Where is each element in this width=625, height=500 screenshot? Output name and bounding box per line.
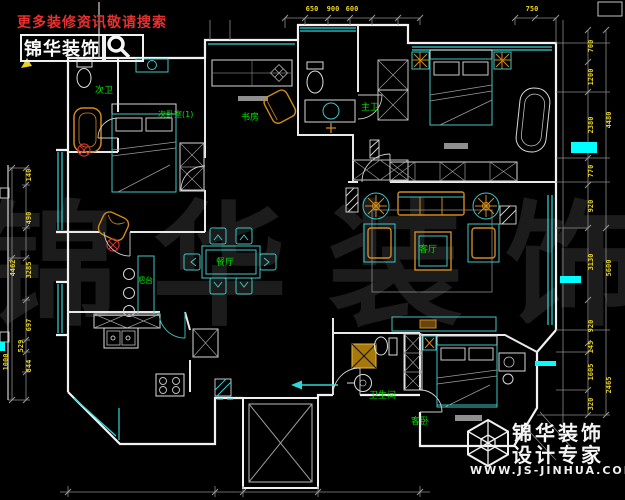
dim-value: 529 (17, 340, 25, 353)
dim-value: 3130 (587, 254, 595, 271)
chair (260, 254, 276, 270)
outer-walls (56, 25, 556, 446)
dim-value: 4480 (605, 112, 613, 129)
lounge-chair (96, 210, 131, 243)
living-room-furniture (363, 192, 499, 331)
dim-value: 600 (346, 5, 359, 13)
dim-value: 320 (587, 398, 595, 411)
dim-value: 900 (327, 5, 340, 13)
dim-value: 490 (25, 212, 33, 225)
tv-cabinet (392, 317, 496, 331)
dim-value: 920 (587, 200, 595, 213)
dresser (499, 353, 525, 371)
dim-value: 145 (587, 341, 595, 354)
chair (210, 228, 226, 244)
bed (437, 345, 497, 407)
desk (238, 96, 268, 101)
bar-furniture (96, 210, 154, 317)
cyan-highlight (571, 142, 597, 153)
cyan-highlight (0, 342, 5, 351)
header-brand-row: 锦华装饰 (20, 34, 144, 62)
lamp-table (473, 193, 499, 219)
bath2-fixtures (74, 59, 168, 156)
footer-website-url: WWW.JS-JINHUA.COM (470, 464, 625, 477)
dim-value: 1200 (587, 69, 595, 86)
dim-value: 770 (587, 165, 595, 178)
room-label-bar: 吧台 (137, 275, 153, 286)
chair (236, 228, 252, 244)
chair (184, 254, 200, 270)
guest-bath-fixtures (347, 334, 422, 392)
chair (236, 278, 252, 294)
dim-value: 1000 (2, 354, 10, 371)
room-label-masterbath: 主卫 (361, 100, 379, 113)
room-label-dining: 餐厅 (216, 255, 234, 268)
floor-plan-poster: 锦 华 装 饰 (0, 0, 625, 500)
dim-value: 844 (25, 360, 33, 373)
floor-drain-icon (78, 144, 90, 156)
room-label-guestbedroom: 客卧 (411, 414, 429, 427)
bed-headboard (437, 336, 497, 345)
dim-value: 697 (25, 319, 33, 332)
entry-arrow-icon (291, 381, 302, 390)
dim-value: 2380 (587, 117, 595, 134)
bed-headboard (430, 50, 492, 59)
bed (112, 114, 176, 192)
dim-value: 5600 (605, 260, 613, 277)
dim-value: 750 (526, 5, 539, 13)
dim-value: 650 (306, 5, 319, 13)
chair (262, 88, 298, 125)
stool (124, 269, 135, 280)
entry (291, 381, 338, 390)
lamp-table (363, 193, 389, 219)
tv (420, 320, 436, 328)
search-logo-box (104, 34, 144, 62)
dim-value: 920 (587, 320, 595, 333)
chaise (515, 87, 552, 154)
dim-value: 3285 (25, 262, 33, 279)
room-label-guestbath: 卫生间 (369, 388, 396, 401)
dim-value: 1605 (587, 364, 595, 381)
guest-bedroom-furniture (423, 336, 525, 421)
room-label-living: 客厅 (419, 242, 437, 255)
chair (210, 278, 226, 294)
dim-value: 2465 (605, 377, 613, 394)
tv (455, 415, 482, 421)
dim-value: 4462 (9, 260, 17, 277)
header-tagline: 更多装修资讯敬请搜索 (17, 12, 167, 32)
cube-logo-icon (468, 420, 508, 466)
elevator-shaft (243, 398, 318, 488)
brand-logo-text: 锦华装饰 (20, 34, 104, 62)
closet-row (390, 162, 517, 181)
kitchen-fixtures (94, 312, 218, 396)
stool (124, 288, 135, 299)
sofa (398, 192, 464, 215)
room-label-study: 书房 (241, 110, 259, 123)
toilet (307, 71, 323, 93)
dim-value: 140 (25, 169, 33, 182)
room-label-bath2: 次卫 (95, 83, 113, 96)
cyan-highlight (560, 276, 581, 283)
cyan-highlight (535, 361, 556, 366)
dim-value: 700 (587, 40, 595, 53)
master-bedroom-furniture (390, 50, 551, 181)
room-label-bedroom1: 次卧室(1) (158, 109, 193, 120)
